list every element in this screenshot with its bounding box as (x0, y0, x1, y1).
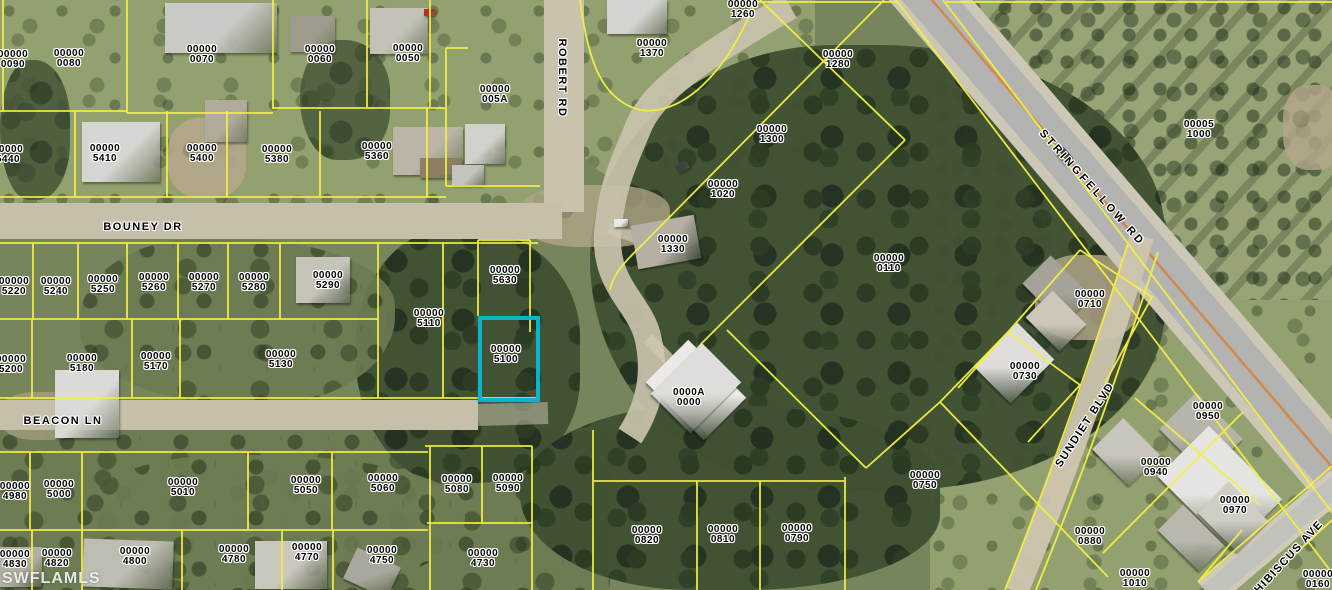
parcel-label: 000000970 (1220, 496, 1250, 516)
parcel-label: 000051000 (1184, 120, 1214, 140)
parcel-label: 000005010 (168, 478, 198, 498)
parcel-label: 000005050 (291, 476, 321, 496)
parcel-label: 000005240 (41, 277, 71, 297)
parcel-label: 000000790 (782, 524, 812, 544)
parcel-label: 000000750 (910, 471, 940, 491)
parcel-label: 000005270 (189, 273, 219, 293)
parcel-label: 000005220 (0, 277, 29, 297)
street-label: ROBERT RD (556, 39, 568, 118)
parcel-label: 000004980 (0, 482, 30, 502)
parcel-label: 000005000 (44, 480, 74, 500)
parcel-label: 000005630 (490, 266, 520, 286)
parcel-label: 000000710 (1075, 290, 1105, 310)
parcel-label: 000000060 (305, 45, 335, 65)
parcel-label: 000004730 (468, 549, 498, 569)
parcel-label: 00000005A (480, 85, 510, 105)
parcel-label: 000000950 (1193, 402, 1223, 422)
street-label: BEACON LN (24, 415, 103, 427)
parcel-label: 000004770 (292, 543, 322, 563)
parcel-label: 000004820 (42, 549, 72, 569)
parcel-label: 000000730 (1010, 362, 1040, 382)
parcel-label: 000005130 (266, 350, 296, 370)
parcel-lines-layer (0, 0, 1332, 590)
parcel-label: 0000A0000 (673, 388, 705, 408)
parcel-label: 000005180 (67, 354, 97, 374)
parcel-label: 000001370 (637, 39, 667, 59)
mls-watermark: SWFLAMLS (2, 570, 101, 588)
parcel-label: 000001300 (757, 125, 787, 145)
parcel-label: 000005250 (88, 275, 118, 295)
parcel-label: 000005200 (0, 355, 26, 375)
parcel-label: 000005170 (141, 352, 171, 372)
parcel-label: 000001010 (1120, 569, 1150, 589)
parcel-label: 000005110 (414, 309, 444, 329)
parcel-label: 000004800 (120, 547, 150, 567)
aerial-parcel-map[interactable]: 0000000900000000800000000700000000600000… (0, 0, 1332, 590)
parcel-label: 000000880 (1075, 527, 1105, 547)
parcel-label: 000005410 (90, 144, 120, 164)
parcel-label: 000005290 (313, 271, 343, 291)
parcel-label: 000005400 (187, 144, 217, 164)
parcel-label: 000001330 (658, 235, 688, 255)
parcel-label: 000005440 (0, 145, 23, 165)
parcel-label: 000000090 (0, 50, 28, 70)
parcel-label: 000000050 (393, 44, 423, 64)
parcel-label: 000000940 (1141, 458, 1171, 478)
parcel-label: 000004750 (367, 546, 397, 566)
parcel-label: 000005280 (239, 273, 269, 293)
parcel-label: 000001260 (728, 0, 758, 20)
parcel-label: 000001020 (708, 180, 738, 200)
parcel-label: 000000110 (874, 254, 904, 274)
parcel-label: 000004780 (219, 545, 249, 565)
parcel-label: 000005260 (139, 273, 169, 293)
parcel-label: 000005090 (493, 474, 523, 494)
parcel-label: 000000810 (708, 525, 738, 545)
parcel-label: 000000820 (632, 526, 662, 546)
parcel-label: 000005360 (362, 142, 392, 162)
parcel-label: 000005380 (262, 145, 292, 165)
parcel-label: 000005060 (368, 474, 398, 494)
street-label: BOUNEY DR (103, 221, 182, 233)
parcel-label: 000000080 (54, 49, 84, 69)
parcel-label: 000004830 (0, 550, 30, 570)
parcel-label: 000005100 (491, 345, 521, 365)
parcel-label: 000001280 (823, 50, 853, 70)
parcel-label: 000000070 (187, 45, 217, 65)
parcel-label: 000005080 (442, 475, 472, 495)
parcel-label: 000000160 (1303, 570, 1332, 590)
